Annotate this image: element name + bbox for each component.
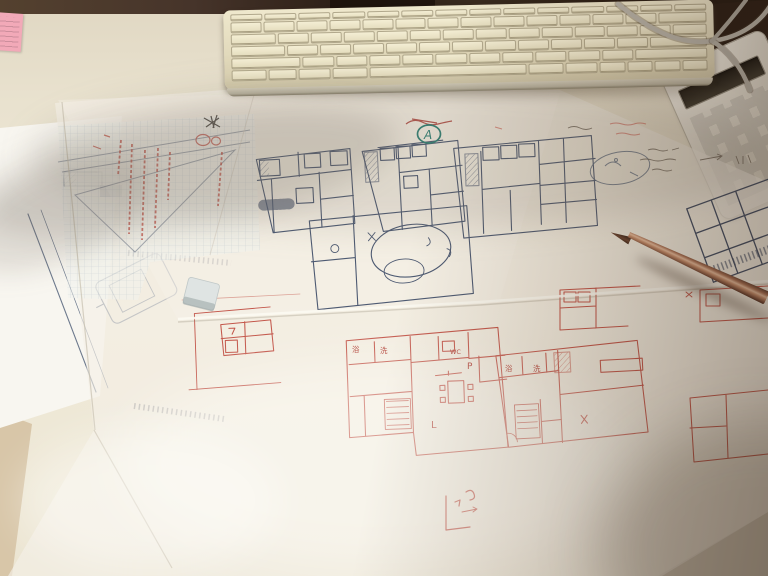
- keyboard-key: [673, 24, 707, 36]
- keyboard-key: [320, 44, 351, 56]
- keyboard-key: [353, 43, 384, 55]
- keyboard-key: [559, 14, 590, 26]
- keyboard-key: [311, 32, 342, 44]
- keyboard-key: [574, 26, 605, 38]
- keyboard-key: [333, 11, 365, 19]
- keyboard-key: [565, 62, 598, 74]
- keyboard-key: [640, 24, 671, 36]
- keyboard-key: [296, 20, 327, 32]
- keyboard-key: [537, 7, 569, 15]
- keyboard-key: [508, 27, 539, 39]
- keyboard-key: [287, 44, 318, 56]
- keyboard-key: [654, 60, 680, 72]
- keyboard-key: [461, 16, 492, 28]
- keyboard-key: [650, 36, 707, 48]
- room-label-parking: P: [467, 362, 473, 372]
- keyboard-key: [386, 42, 417, 54]
- room-label-bath: 浴: [352, 344, 360, 354]
- keyboard-key: [336, 55, 367, 67]
- room-label-wc: WC: [450, 348, 461, 356]
- keyboard-key: [369, 64, 526, 79]
- keyboard-key: [606, 5, 638, 13]
- keyboard-key: [535, 51, 566, 63]
- room-label-bath-2: 浴: [505, 363, 513, 373]
- keyboard-key: [503, 7, 535, 15]
- keyboard-key: [625, 13, 656, 25]
- photo-root: Canon: [0, 0, 768, 576]
- keyboard-key: [572, 6, 604, 14]
- keyboard-key: [443, 29, 474, 41]
- keyboard: [223, 0, 715, 90]
- keyboard-key: [231, 45, 285, 57]
- keyboard-key: [682, 60, 708, 72]
- keyboard-key: [435, 53, 466, 65]
- keyboard-key: [658, 12, 706, 24]
- circled-letter: A: [423, 128, 432, 142]
- keyboard-key: [410, 30, 441, 42]
- keyboard-key: [303, 56, 334, 68]
- room-label-living: L: [431, 420, 437, 431]
- keyboard-key: [299, 12, 331, 20]
- keyboard-key: [485, 40, 516, 52]
- keyboard-key: [494, 16, 525, 28]
- keyboard-key: [329, 19, 360, 31]
- keyboard-key: [264, 13, 296, 21]
- keyboard-key: [592, 13, 623, 25]
- keyboard-key: [402, 54, 433, 66]
- keyboard-key: [344, 31, 375, 43]
- keyboard-key: [584, 38, 615, 50]
- keyboard-key: [551, 38, 582, 50]
- keyboard-key: [435, 9, 467, 17]
- keyboard-key: [502, 52, 533, 64]
- room-label-wash: 洗: [380, 345, 388, 355]
- keyboard-key: [333, 67, 368, 79]
- keyboard-key: [541, 27, 572, 39]
- keyboard-key: [475, 28, 506, 40]
- keyboard-key: [602, 49, 633, 61]
- room-label-wash-2: 洗: [533, 363, 541, 373]
- keyboard-key: [600, 61, 626, 73]
- keyboard-key: [469, 52, 500, 64]
- keyboard-key: [232, 70, 267, 82]
- keyboard-key: [362, 19, 393, 31]
- keyboard-key: [367, 11, 399, 19]
- keyboard-key: [263, 21, 294, 33]
- keyboard-key: [231, 57, 301, 70]
- keyboard-key: [278, 33, 309, 45]
- keyboard-key: [268, 69, 296, 81]
- keyboard-key: [428, 17, 459, 29]
- keyboard-keys: [229, 4, 708, 82]
- keyboard-key: [469, 8, 501, 16]
- keyboard-key: [419, 41, 450, 53]
- keyboard-key: [635, 48, 707, 61]
- keyboard-key: [627, 61, 653, 73]
- keyboard-key: [298, 68, 331, 80]
- keyboard-key: [231, 33, 277, 45]
- keyboard-key: [401, 10, 433, 18]
- keyboard-key: [518, 39, 549, 51]
- keyboard-key: [230, 22, 261, 34]
- keyboard-key: [640, 4, 672, 12]
- keyboard-key: [568, 50, 599, 62]
- keyboard-key: [377, 30, 408, 42]
- keyboard-key: [674, 4, 706, 12]
- keyboard-key: [527, 15, 558, 27]
- keyboard-key: [617, 37, 648, 49]
- keyboard-key: [452, 41, 483, 53]
- keyboard-key: [230, 14, 262, 22]
- keyboard-key: [395, 18, 426, 30]
- keyboard-key: [528, 63, 563, 75]
- keyboard-key: [607, 25, 638, 37]
- keyboard-key: [369, 55, 400, 67]
